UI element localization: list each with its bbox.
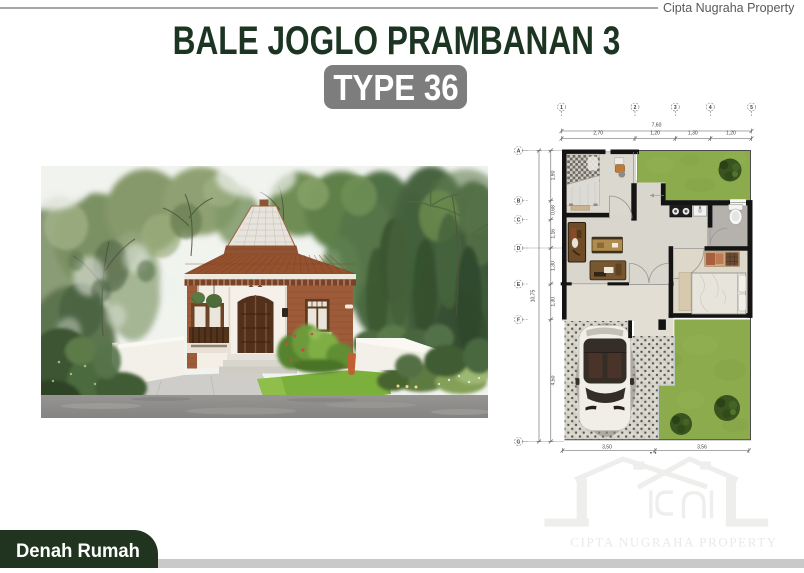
svg-text:1,30: 1,30 (551, 297, 557, 307)
svg-text:C: C (517, 218, 521, 224)
svg-text:G: G (517, 440, 521, 446)
svg-text:1,90: 1,90 (551, 170, 557, 180)
svg-text:1,16: 1,16 (551, 229, 557, 239)
svg-text:B: B (517, 199, 521, 205)
svg-text:2,70: 2,70 (593, 131, 603, 137)
svg-text:2: 2 (634, 105, 637, 111)
svg-text:4,50: 4,50 (551, 375, 557, 385)
svg-text:A: A (517, 149, 521, 155)
svg-text:5: 5 (750, 105, 753, 111)
svg-text:1,30: 1,30 (688, 131, 698, 137)
svg-text:CIPTA NUGRAHA PROPERTY: CIPTA NUGRAHA PROPERTY (570, 535, 777, 550)
svg-text:1,30: 1,30 (551, 261, 557, 271)
svg-text:4: 4 (709, 105, 712, 111)
svg-text:3: 3 (674, 105, 677, 111)
svg-text:7,60: 7,60 (652, 123, 662, 129)
svg-text:0,68: 0,68 (551, 205, 557, 215)
svg-text:D: D (517, 246, 521, 252)
svg-text:1,20: 1,20 (726, 131, 736, 137)
svg-text:E: E (517, 282, 521, 288)
svg-text:10,75: 10,75 (531, 290, 537, 303)
svg-text:1: 1 (560, 105, 563, 111)
svg-text:F: F (517, 318, 520, 324)
svg-text:1,20: 1,20 (650, 131, 660, 137)
